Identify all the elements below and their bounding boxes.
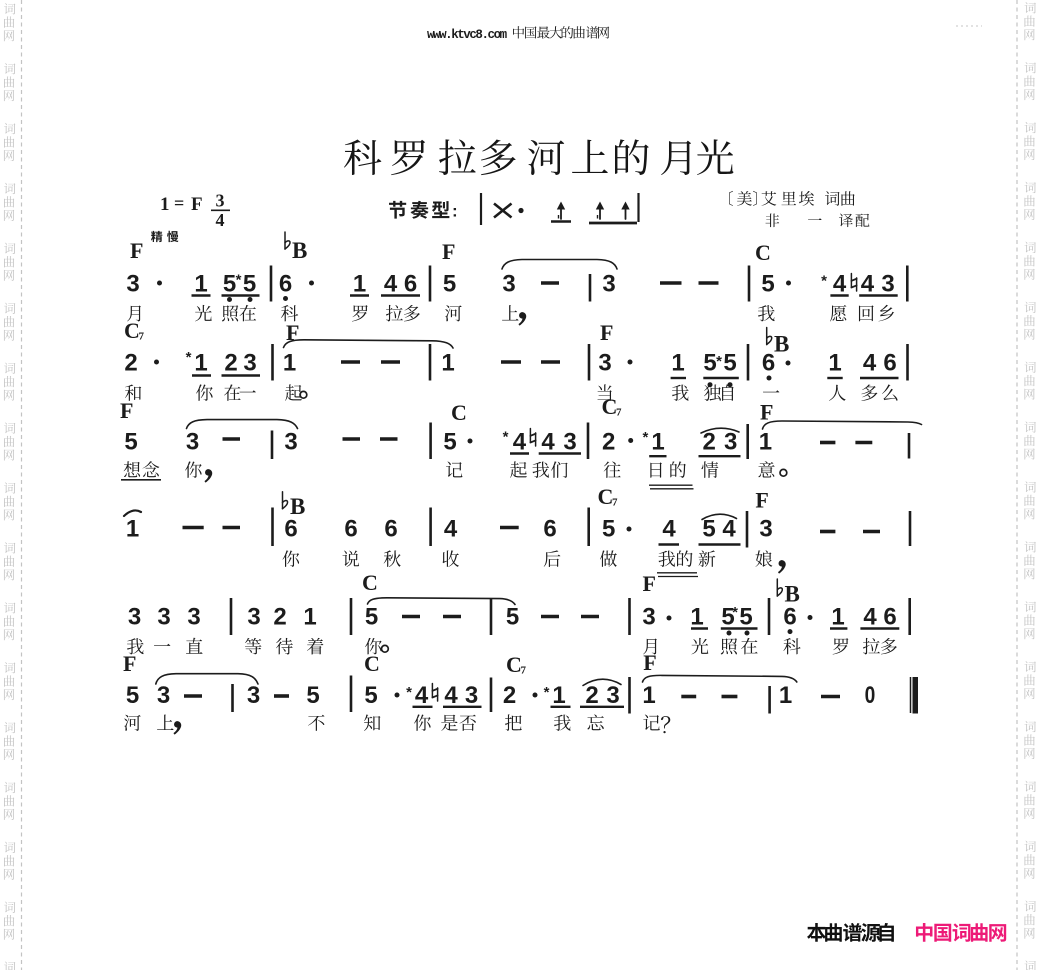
svg-text:F: F: [643, 650, 656, 675]
svg-text:4: 4: [833, 271, 847, 298]
svg-text:3: 3: [157, 604, 170, 631]
svg-text:*: *: [186, 349, 192, 366]
svg-text:3: 3: [602, 271, 615, 298]
svg-text:*: *: [236, 272, 242, 289]
svg-text:6: 6: [762, 350, 775, 377]
svg-text:6: 6: [404, 271, 417, 298]
svg-text:1: 1: [552, 682, 565, 709]
svg-text:7: 7: [521, 665, 527, 677]
svg-text::: :: [452, 202, 458, 221]
svg-text:1: 1: [353, 271, 366, 298]
svg-text:3: 3: [247, 682, 260, 709]
svg-text:5: 5: [506, 604, 519, 631]
svg-text:5: 5: [761, 271, 774, 298]
svg-text:3: 3: [642, 604, 655, 631]
svg-text:6: 6: [284, 516, 297, 543]
svg-text:3: 3: [881, 271, 894, 298]
svg-text:0: 0: [865, 681, 876, 709]
svg-text:*: *: [544, 684, 550, 701]
svg-text:6: 6: [344, 516, 357, 543]
svg-text:C: C: [451, 400, 467, 425]
svg-text:5: 5: [126, 682, 139, 709]
svg-text:2: 2: [503, 682, 516, 709]
svg-text:4: 4: [216, 210, 225, 230]
svg-text:3: 3: [187, 604, 200, 631]
svg-text:2: 2: [224, 350, 237, 377]
svg-text:5: 5: [243, 271, 256, 298]
svg-text:5: 5: [443, 429, 456, 456]
svg-text:1: 1: [759, 429, 772, 456]
svg-text:3: 3: [606, 682, 619, 709]
svg-text:3: 3: [759, 516, 772, 543]
svg-text:*: *: [821, 273, 827, 290]
svg-text:1: 1: [194, 350, 207, 377]
svg-text:www.ktvc8.com: www.ktvc8.com: [427, 28, 508, 42]
svg-text:7: 7: [612, 497, 618, 509]
svg-text:5: 5: [703, 350, 716, 377]
svg-text:4: 4: [863, 350, 877, 377]
svg-text:F: F: [600, 320, 613, 345]
svg-text:2: 2: [585, 682, 598, 709]
svg-text:3: 3: [186, 429, 199, 456]
svg-text:2: 2: [124, 350, 137, 377]
svg-text:3: 3: [247, 604, 260, 631]
svg-text:B: B: [292, 238, 307, 263]
svg-text:5: 5: [365, 604, 378, 631]
svg-text:1: 1: [160, 194, 170, 215]
svg-text:C: C: [362, 570, 378, 595]
svg-text:*: *: [503, 429, 509, 446]
svg-text:F: F: [130, 238, 143, 263]
svg-text:4: 4: [444, 682, 458, 709]
svg-text:3: 3: [157, 682, 170, 709]
svg-text:5: 5: [223, 271, 236, 298]
svg-text:C: C: [602, 394, 618, 419]
svg-text:3: 3: [465, 682, 478, 709]
svg-text:5: 5: [364, 682, 377, 709]
svg-text:1: 1: [283, 350, 296, 377]
svg-text:*: *: [642, 429, 648, 446]
svg-text:1: 1: [779, 682, 792, 709]
svg-text:5: 5: [702, 516, 715, 543]
svg-text:3: 3: [563, 429, 576, 456]
svg-text:F: F: [191, 194, 203, 215]
svg-text:7: 7: [616, 407, 622, 419]
svg-text:4: 4: [384, 271, 398, 298]
svg-text:5: 5: [602, 516, 615, 543]
svg-text:F: F: [760, 400, 773, 425]
svg-text:6: 6: [883, 604, 896, 631]
svg-text:1: 1: [126, 516, 139, 543]
svg-text:3: 3: [216, 191, 225, 211]
svg-text:5: 5: [124, 429, 137, 456]
svg-text:C: C: [124, 318, 140, 343]
svg-text:C: C: [598, 484, 614, 509]
svg-text:1: 1: [828, 350, 841, 377]
svg-text:6: 6: [783, 604, 796, 631]
svg-text:=: =: [174, 193, 184, 213]
svg-text:C: C: [506, 652, 522, 677]
svg-text:2: 2: [703, 429, 716, 456]
svg-text:6: 6: [543, 516, 556, 543]
svg-text:B: B: [774, 332, 789, 357]
svg-text:4: 4: [444, 516, 458, 543]
svg-text:*: *: [406, 684, 412, 701]
svg-text:3: 3: [126, 271, 139, 298]
svg-text:1: 1: [690, 604, 703, 631]
svg-text:1: 1: [651, 429, 664, 456]
svg-text:3: 3: [598, 350, 611, 377]
svg-text:4: 4: [541, 429, 555, 456]
svg-text:C: C: [755, 240, 771, 265]
svg-text:*: *: [732, 604, 738, 621]
svg-text:5: 5: [443, 271, 456, 298]
svg-text:3: 3: [284, 429, 297, 456]
svg-text:4: 4: [722, 516, 736, 543]
svg-text:3: 3: [243, 350, 256, 377]
svg-text:6: 6: [883, 350, 896, 377]
svg-text:F: F: [120, 398, 133, 423]
svg-text:1: 1: [441, 350, 454, 377]
svg-text:5: 5: [723, 350, 736, 377]
svg-text:7: 7: [139, 331, 145, 343]
svg-text:4: 4: [513, 429, 527, 456]
svg-text:1: 1: [194, 271, 207, 298]
svg-text:1: 1: [642, 682, 655, 709]
svg-text:4: 4: [415, 682, 429, 709]
svg-text:F: F: [643, 571, 656, 596]
svg-text:C: C: [364, 651, 380, 676]
svg-text:1: 1: [303, 604, 316, 631]
svg-text:4: 4: [863, 604, 877, 631]
svg-text:5: 5: [306, 682, 319, 709]
svg-text:6: 6: [279, 271, 292, 298]
svg-text:3: 3: [502, 271, 515, 298]
svg-text:5: 5: [739, 604, 752, 631]
svg-text:F: F: [755, 488, 768, 513]
svg-text:3: 3: [724, 429, 737, 456]
svg-text:1: 1: [831, 604, 844, 631]
svg-text:F: F: [442, 239, 455, 264]
svg-text:4: 4: [861, 271, 875, 298]
svg-text:2: 2: [602, 429, 615, 456]
svg-text:2: 2: [273, 604, 286, 631]
svg-text:F: F: [123, 651, 136, 676]
svg-text:1: 1: [671, 350, 684, 377]
svg-text:6: 6: [384, 516, 397, 543]
svg-text:4: 4: [662, 516, 676, 543]
svg-text:3: 3: [128, 604, 141, 631]
svg-text:*: *: [716, 353, 722, 370]
